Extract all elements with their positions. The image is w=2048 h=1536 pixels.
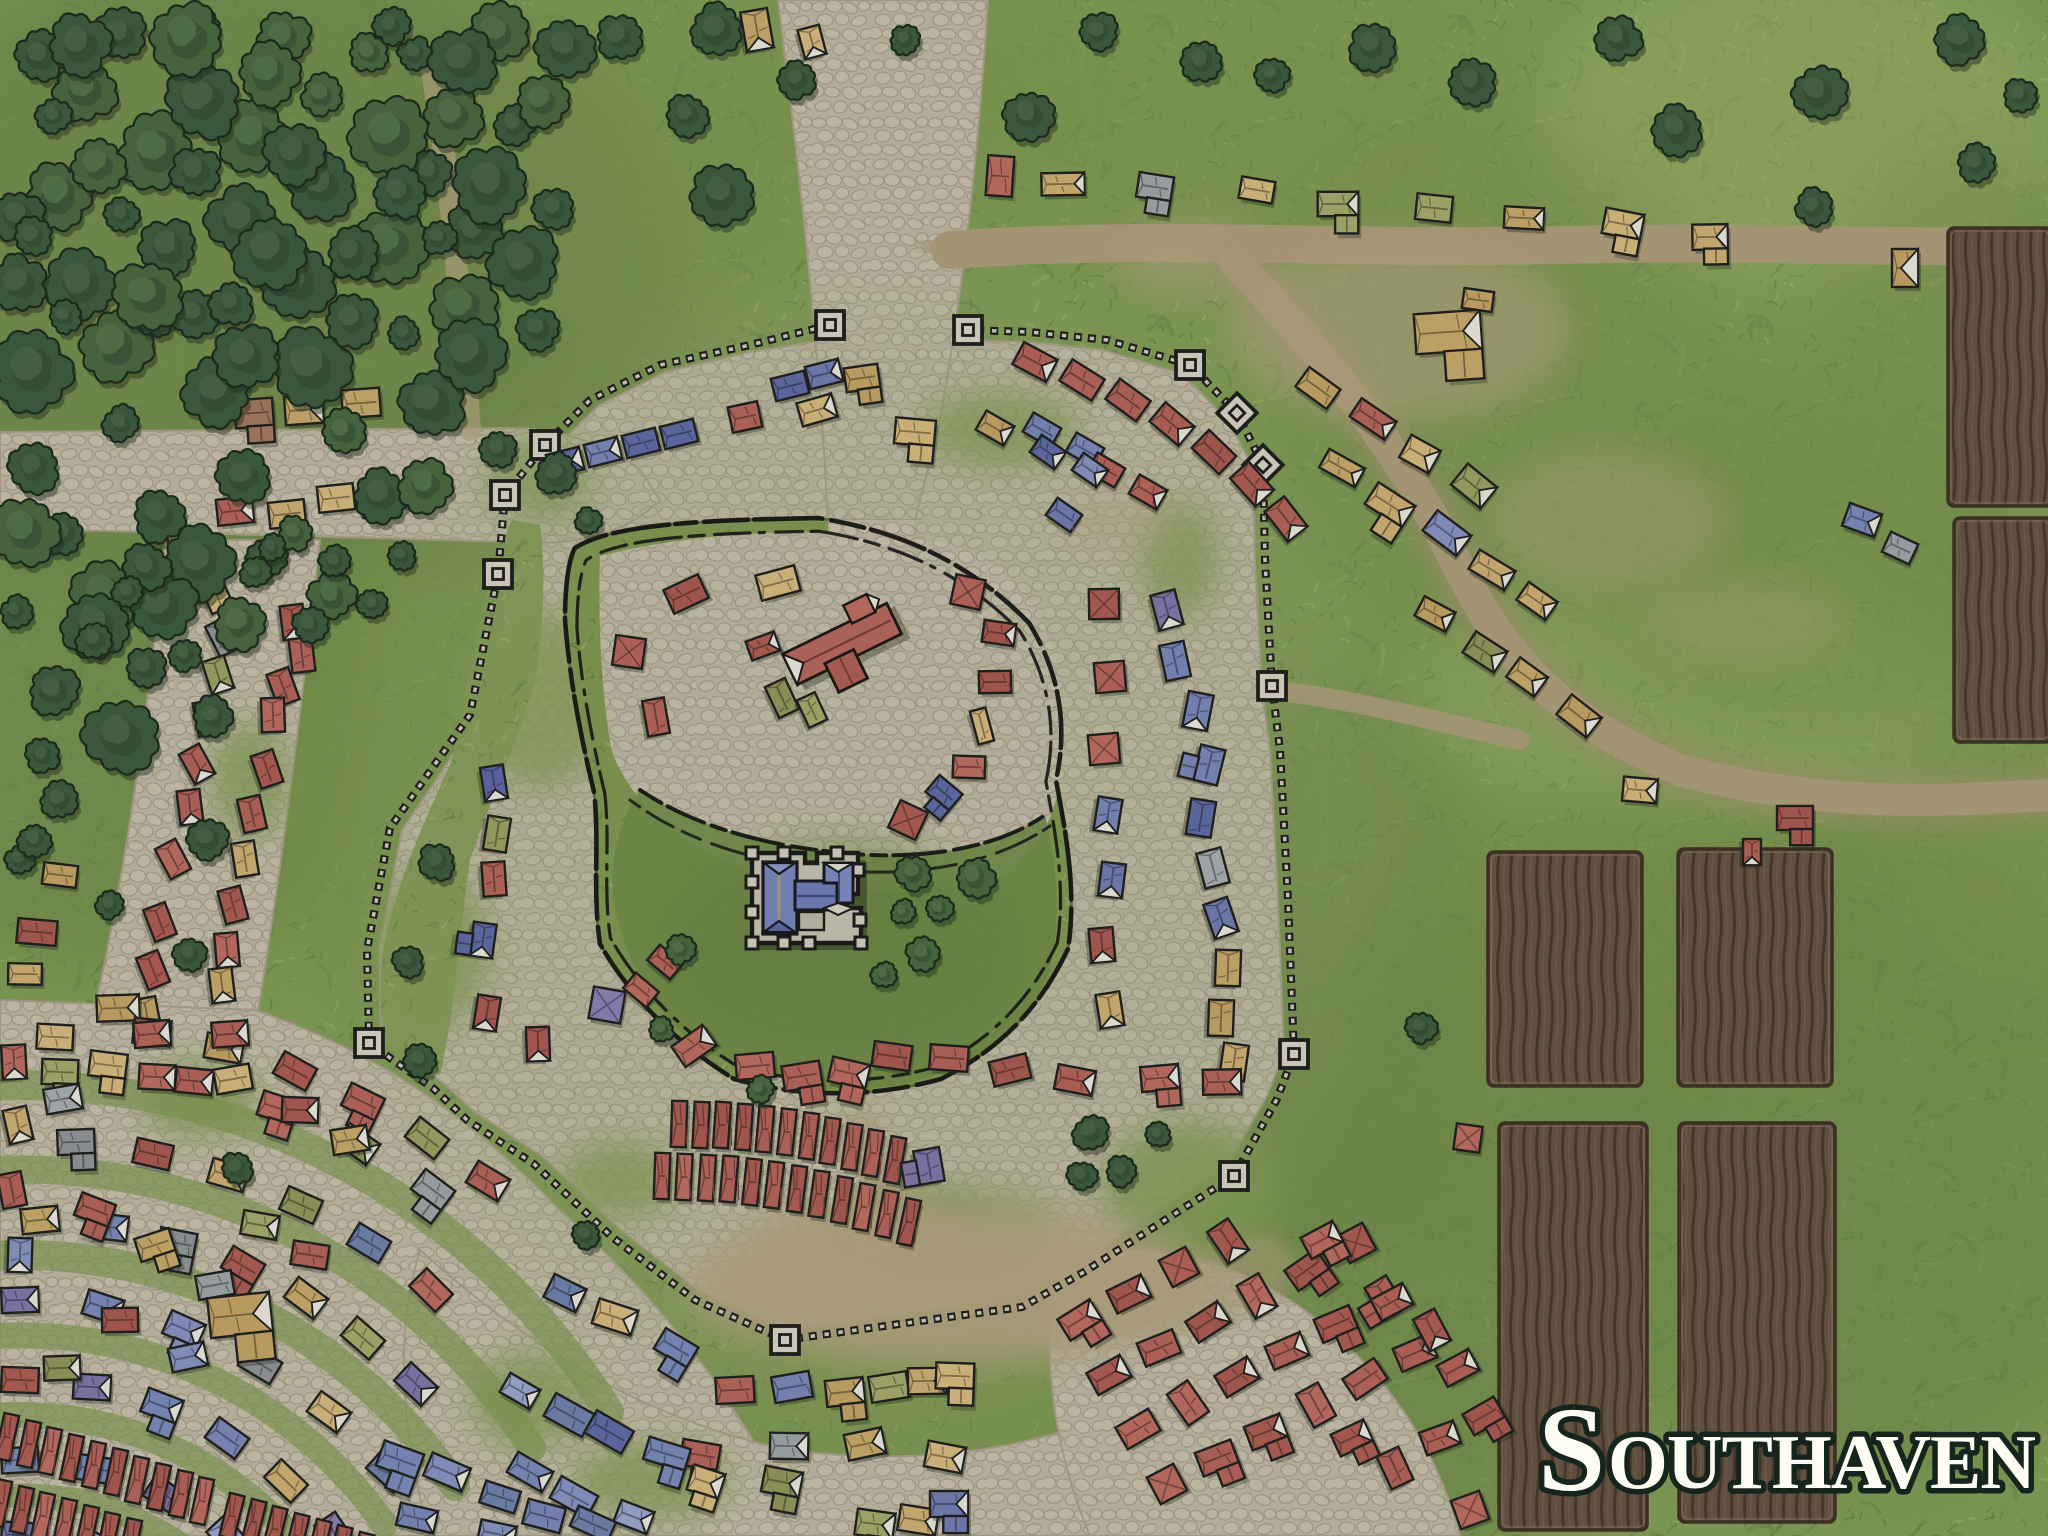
svg-text:OUTHAVEN: OUTHAVEN [1608, 1419, 2035, 1505]
svg-text:S: S [1538, 1383, 1607, 1517]
